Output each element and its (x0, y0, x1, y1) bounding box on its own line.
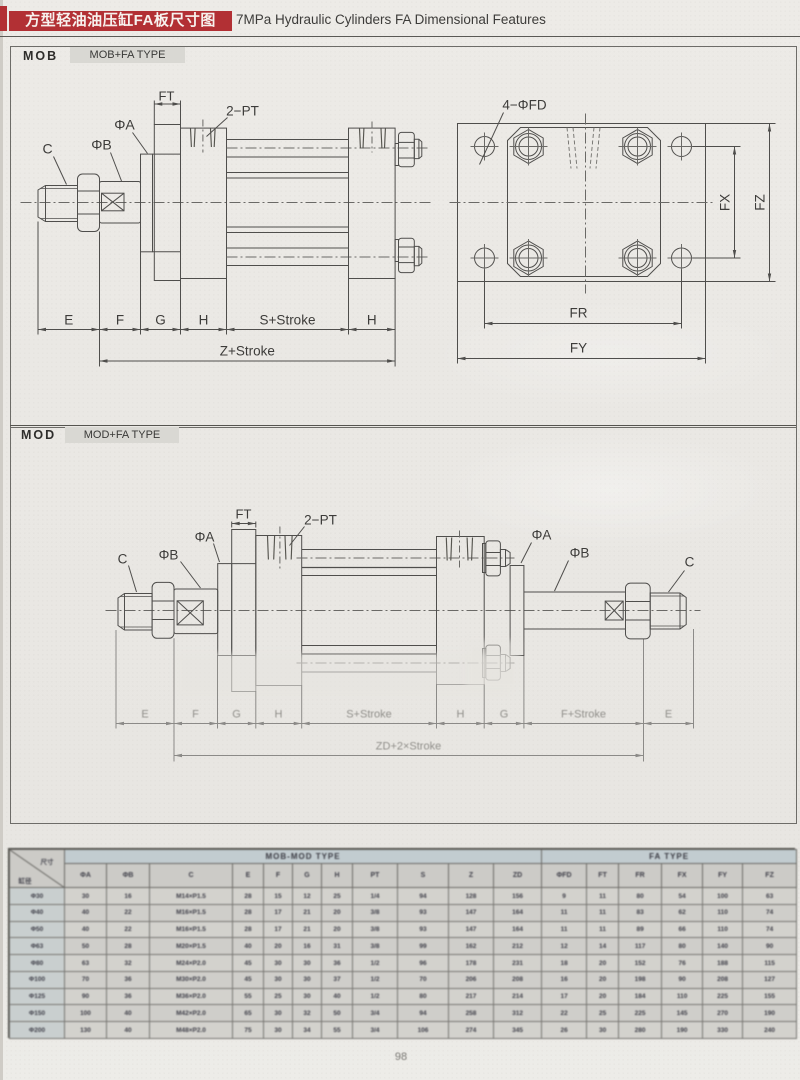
svg-text:缸径: 缸径 (18, 876, 33, 885)
svg-text:ΦB: ΦB (159, 548, 179, 563)
svg-text:C: C (685, 555, 695, 570)
svg-text:FY: FY (570, 341, 587, 356)
svg-text:2−PT: 2−PT (226, 104, 259, 119)
svg-text:2−PT: 2−PT (304, 513, 337, 528)
svg-text:FT: FT (236, 507, 252, 522)
svg-text:尺寸: 尺寸 (41, 857, 55, 866)
svg-text:G: G (155, 313, 166, 328)
svg-text:H: H (275, 709, 283, 721)
svg-text:FX: FX (718, 194, 733, 211)
svg-text:H: H (199, 313, 209, 328)
svg-text:G: G (232, 709, 241, 721)
svg-text:C: C (42, 141, 52, 157)
svg-text:FT: FT (159, 89, 175, 104)
svg-text:E: E (64, 313, 73, 328)
svg-text:C: C (118, 552, 128, 567)
svg-text:4−ΦFD: 4−ΦFD (502, 98, 546, 113)
svg-text:ΦB: ΦB (570, 546, 590, 561)
svg-text:ΦB: ΦB (91, 137, 112, 153)
svg-text:ΦA: ΦA (195, 530, 215, 545)
svg-text:E: E (141, 709, 148, 721)
svg-text:G: G (500, 709, 509, 721)
svg-text:Z+Stroke: Z+Stroke (220, 344, 275, 359)
svg-text:F: F (116, 313, 124, 328)
svg-text:F+Stroke: F+Stroke (561, 709, 606, 721)
svg-text:F: F (192, 709, 199, 721)
svg-text:FZ: FZ (753, 194, 768, 211)
svg-text:ΦA: ΦA (114, 117, 135, 133)
svg-text:S+Stroke: S+Stroke (260, 313, 316, 328)
svg-text:ΦA: ΦA (532, 528, 552, 543)
svg-text:ZD+2×Stroke: ZD+2×Stroke (376, 741, 441, 753)
svg-text:H: H (457, 709, 465, 721)
svg-text:E: E (665, 709, 672, 721)
svg-text:H: H (367, 313, 377, 328)
svg-text:FR: FR (570, 306, 588, 321)
svg-text:S+Stroke: S+Stroke (346, 709, 392, 721)
